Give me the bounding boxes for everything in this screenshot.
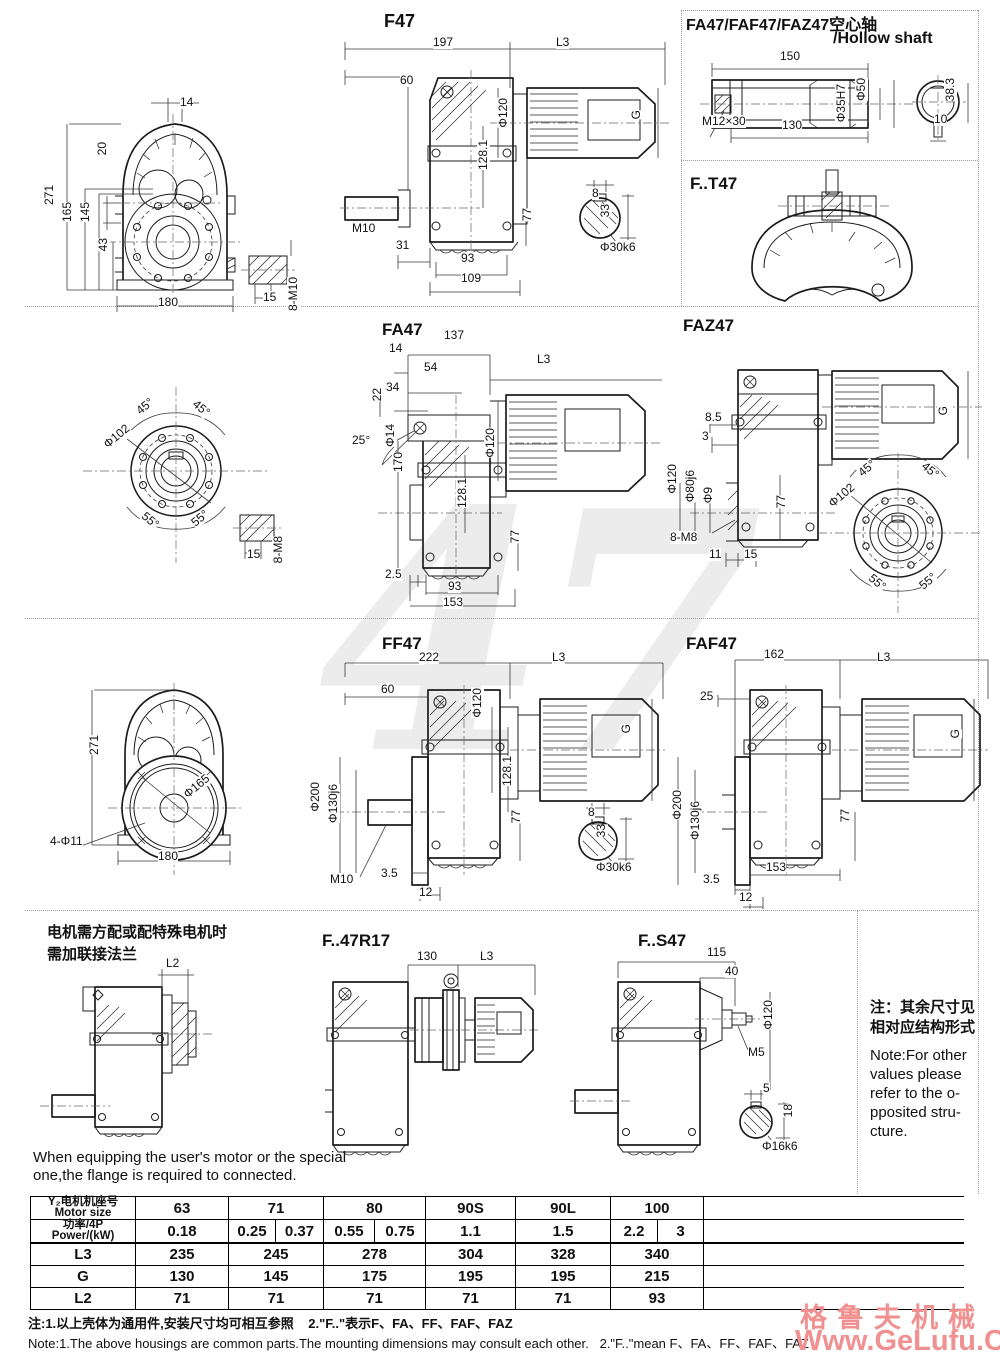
dim-label: 8-M10 bbox=[287, 277, 300, 311]
dim-label: 128.1 bbox=[456, 478, 469, 508]
cell-g: 215 bbox=[611, 1266, 704, 1288]
dim-label: Φ200 bbox=[309, 782, 322, 812]
cell-power: 0.75 bbox=[375, 1220, 426, 1244]
dim-label: Φ30k6 bbox=[600, 241, 636, 254]
dim-label: 130 bbox=[417, 950, 437, 963]
cell-l3: 304 bbox=[426, 1243, 516, 1266]
dim-label: Φ200 bbox=[671, 790, 684, 820]
table-row-motor-size: Y₂电机机座号 Motor size 63 71 80 90S 90L 100 bbox=[31, 1197, 964, 1220]
divider bbox=[25, 910, 978, 911]
dim-label: 8.5 bbox=[705, 411, 722, 424]
f47-side-drawing bbox=[340, 30, 670, 300]
hollow-title-en: /Hollow shaft bbox=[833, 30, 933, 48]
fr17-title: F..47R17 bbox=[322, 931, 390, 951]
cell-power: 2.2 bbox=[611, 1220, 658, 1244]
cell-power: 3 bbox=[658, 1220, 704, 1244]
cell-l2: 71 bbox=[516, 1288, 611, 1310]
side-note-en-line2: values please bbox=[870, 1065, 967, 1084]
dim-label: 60 bbox=[381, 683, 394, 696]
dim-label: 10 bbox=[934, 113, 947, 126]
side-note-cn-line1: 注：其余尺寸见 bbox=[870, 998, 975, 1018]
dim-label: 40 bbox=[725, 965, 738, 978]
dim-label: 12 bbox=[739, 891, 752, 904]
dim-label: 11 bbox=[709, 548, 721, 561]
cell-empty bbox=[704, 1220, 964, 1244]
dim-label: G bbox=[949, 729, 962, 738]
dim-label: 128.1 bbox=[501, 756, 514, 786]
cell-power: 1.5 bbox=[516, 1220, 611, 1244]
dim-label: L3 bbox=[877, 651, 890, 664]
flange-note-en-line2: one,the flange is required to connected. bbox=[33, 1167, 297, 1184]
dim-label: 25° bbox=[352, 434, 370, 447]
brand-watermark-url: Www.GeLufu.Com bbox=[795, 1325, 1000, 1354]
dim-label: G bbox=[937, 406, 950, 415]
faz47-title: FAZ47 bbox=[683, 316, 734, 336]
dim-label: 180 bbox=[158, 850, 178, 863]
dim-label: 77 bbox=[775, 495, 788, 508]
dim-label: 4-Φ11 bbox=[50, 835, 83, 848]
dim-label: 93 bbox=[448, 580, 461, 593]
dim-label: Φ130j6 bbox=[689, 801, 702, 840]
flange-note-drawing bbox=[40, 955, 220, 1160]
cell-power: 0.25 bbox=[229, 1220, 276, 1244]
side-note-cn: 注：其余尺寸见 相对应结构形式 bbox=[870, 998, 975, 1038]
flange-note-cn-line1: 电机需方配或配特殊电机时 bbox=[47, 921, 227, 942]
side-note-en-line1: Note:For other bbox=[870, 1046, 967, 1065]
dim-label: 14 bbox=[180, 96, 193, 109]
cell-motor-90L: 90L bbox=[516, 1197, 611, 1220]
f47-front-drawing bbox=[55, 70, 320, 335]
cell-l2: 71 bbox=[324, 1288, 426, 1310]
flange-note-en-line1: When equipping the user's motor or the s… bbox=[33, 1149, 346, 1166]
ff47-title: FF47 bbox=[382, 634, 422, 654]
cell-empty bbox=[704, 1243, 964, 1266]
dim-label: Φ120 bbox=[762, 1000, 775, 1030]
row-header-power: 功率/4P Power/(kW) bbox=[31, 1220, 136, 1244]
cell-empty bbox=[704, 1197, 964, 1220]
dim-label: 8 bbox=[592, 187, 599, 200]
cell-l2: 93 bbox=[611, 1288, 704, 1310]
cell-power: 0.18 bbox=[136, 1220, 229, 1244]
dim-label: 271 bbox=[43, 185, 56, 205]
dim-label: 145 bbox=[79, 202, 92, 222]
side-note-en-line4: pposited stru- bbox=[870, 1103, 967, 1122]
dim-label: 38.3 bbox=[944, 78, 957, 101]
cell-l3: 340 bbox=[611, 1243, 704, 1266]
cell-g: 195 bbox=[516, 1266, 611, 1288]
dim-label: G bbox=[630, 110, 643, 119]
cell-power: 0.55 bbox=[324, 1220, 375, 1244]
cell-g: 145 bbox=[229, 1266, 324, 1288]
cell-power: 0.37 bbox=[276, 1220, 324, 1244]
dim-label: 77 bbox=[839, 809, 852, 822]
cell-l2: 71 bbox=[426, 1288, 516, 1310]
dim-label: 12 bbox=[419, 886, 432, 899]
spec-table: Y₂电机机座号 Motor size 63 71 80 90S 90L 100 … bbox=[30, 1196, 964, 1310]
dim-label: 54 bbox=[424, 361, 437, 374]
dim-label: 8-M8 bbox=[670, 531, 697, 544]
dim-label: L2 bbox=[166, 957, 179, 970]
dim-label: 22 bbox=[371, 388, 384, 401]
cell-empty bbox=[704, 1266, 964, 1288]
cell-l3: 245 bbox=[229, 1243, 324, 1266]
cell-motor-63: 63 bbox=[136, 1197, 229, 1220]
dim-label: 14 bbox=[389, 342, 402, 355]
faf47-side-drawing bbox=[660, 645, 990, 910]
fs47-title: F..S47 bbox=[638, 931, 686, 951]
dim-label: 3 bbox=[702, 430, 709, 443]
dim-label: Φ50 bbox=[855, 78, 868, 101]
dim-label: 8-M8 bbox=[272, 536, 285, 563]
side-note-en-line5: cture. bbox=[870, 1122, 967, 1141]
dim-label: 271 bbox=[88, 735, 101, 755]
dim-label: 34 bbox=[386, 381, 399, 394]
fa47-title: FA47 bbox=[382, 320, 423, 340]
dim-label: 222 bbox=[419, 651, 439, 664]
dim-label: Φ120 bbox=[471, 688, 484, 718]
side-note-en: Note:For other values please refer to th… bbox=[870, 1046, 967, 1141]
dim-label: 5 bbox=[763, 1082, 770, 1095]
dim-label: L3 bbox=[480, 950, 493, 963]
dim-label: 93 bbox=[461, 252, 474, 265]
cell-l3: 235 bbox=[136, 1243, 229, 1266]
dim-label: 137 bbox=[444, 329, 464, 342]
dim-label: 162 bbox=[764, 648, 784, 661]
dim-label: 18 bbox=[782, 1104, 795, 1117]
cell-motor-80: 80 bbox=[324, 1197, 426, 1220]
cell-motor-90S: 90S bbox=[426, 1197, 516, 1220]
dim-label: 197 bbox=[433, 36, 453, 49]
row-header-motor-en: Motor size bbox=[31, 1208, 135, 1219]
dim-label: Φ30k6 bbox=[596, 861, 632, 874]
dim-label: Φ120 bbox=[484, 428, 497, 458]
dim-label: 15 bbox=[263, 291, 276, 304]
ft47-title: F..T47 bbox=[690, 174, 737, 194]
dim-label: 31 bbox=[396, 239, 409, 252]
cell-l2: 71 bbox=[136, 1288, 229, 1310]
dim-label: 180 bbox=[158, 296, 178, 309]
dim-label: 3.5 bbox=[703, 873, 720, 886]
cell-l2: 71 bbox=[229, 1288, 324, 1310]
cell-motor-71: 71 bbox=[229, 1197, 324, 1220]
footnote-en: Note:1.The above housings are common par… bbox=[28, 1333, 809, 1352]
dim-label: 25 bbox=[700, 690, 713, 703]
dim-label: 2.5 bbox=[385, 568, 402, 581]
flange-note-cn-line2: 需加联接法兰 bbox=[47, 943, 137, 964]
dim-label: Φ130j6 bbox=[327, 784, 340, 823]
dim-label: 33 bbox=[595, 824, 608, 837]
dim-label: 109 bbox=[461, 272, 481, 285]
dim-label: 130 bbox=[782, 119, 802, 132]
cell-l3: 328 bbox=[516, 1243, 611, 1266]
dim-label: 170 bbox=[392, 452, 405, 472]
dim-label: 8 bbox=[588, 806, 595, 819]
footnote-cn: 注:1.以上壳体为通用件,安装尺寸均可相互参照 2."F.."表示F、FA、FF… bbox=[28, 1313, 513, 1332]
dim-label: 153 bbox=[443, 596, 463, 609]
dim-label: Φ120 bbox=[666, 464, 679, 494]
dim-label: 77 bbox=[521, 208, 534, 221]
dim-label: Φ14 bbox=[384, 424, 397, 447]
table-row-g: G 130 145 175 195 195 215 bbox=[31, 1266, 964, 1288]
dim-label: L3 bbox=[537, 353, 550, 366]
dim-label: 20 bbox=[96, 142, 109, 155]
table-row-l3: L3 235 245 278 304 328 340 bbox=[31, 1243, 964, 1266]
cell-g: 175 bbox=[324, 1266, 426, 1288]
dim-label: 115 bbox=[707, 946, 726, 959]
dim-label: Φ16k6 bbox=[762, 1140, 798, 1153]
dim-label: 33 bbox=[599, 204, 612, 217]
dim-label: Φ9 bbox=[702, 487, 715, 503]
faf47-title: FAF47 bbox=[686, 634, 737, 654]
side-note-cn-line2: 相对应结构形式 bbox=[870, 1018, 975, 1038]
dim-label: L3 bbox=[552, 651, 565, 664]
dim-label: M10 bbox=[330, 873, 353, 886]
divider bbox=[681, 160, 978, 161]
dim-label: M12×30 bbox=[702, 115, 746, 128]
dim-label: 60 bbox=[400, 74, 413, 87]
dim-label: 128.1 bbox=[477, 140, 490, 170]
dim-label: 15 bbox=[247, 548, 260, 561]
divider bbox=[681, 10, 682, 306]
dim-label: 77 bbox=[509, 530, 522, 543]
dim-label: M10 bbox=[352, 222, 375, 235]
table-row-power: 功率/4P Power/(kW) 0.18 0.25 0.37 0.55 0.7… bbox=[31, 1220, 964, 1244]
dim-label: 150 bbox=[780, 50, 800, 63]
dim-label: L3 bbox=[556, 36, 569, 49]
dim-label: Φ35H7 bbox=[835, 84, 848, 122]
cell-motor-100: 100 bbox=[611, 1197, 704, 1220]
row-header-l2: L2 bbox=[31, 1288, 136, 1310]
cell-g: 195 bbox=[426, 1266, 516, 1288]
faz47-drawing bbox=[650, 335, 990, 620]
row-header-l3: L3 bbox=[31, 1243, 136, 1266]
cell-g: 130 bbox=[136, 1266, 229, 1288]
row-header-motor-size: Y₂电机机座号 Motor size bbox=[31, 1197, 136, 1220]
dim-label: M5 bbox=[748, 1046, 765, 1059]
hollow-shaft-drawing bbox=[690, 55, 975, 150]
row-header-g: G bbox=[31, 1266, 136, 1288]
dim-label: 77 bbox=[510, 810, 523, 823]
dim-label: 43 bbox=[97, 238, 110, 251]
f47-title: F47 bbox=[384, 11, 415, 32]
cell-power: 1.1 bbox=[426, 1220, 516, 1244]
dim-label: 153 bbox=[766, 861, 786, 874]
fs47-drawing bbox=[570, 950, 870, 1160]
row-header-power-en: Power/(kW) bbox=[31, 1231, 135, 1242]
dim-label: 3.5 bbox=[381, 867, 398, 880]
side-note-en-line3: refer to the o- bbox=[870, 1084, 967, 1103]
dim-label: Φ80j6 bbox=[684, 470, 697, 502]
cell-l3: 278 bbox=[324, 1243, 426, 1266]
dim-label: Φ120 bbox=[497, 98, 510, 128]
dim-label: 15 bbox=[744, 548, 757, 561]
catalog-page: 47 bbox=[0, 0, 1000, 1354]
fa47-flange-drawing bbox=[65, 385, 305, 620]
dim-label: 165 bbox=[61, 202, 74, 222]
dim-label: G bbox=[620, 724, 633, 733]
